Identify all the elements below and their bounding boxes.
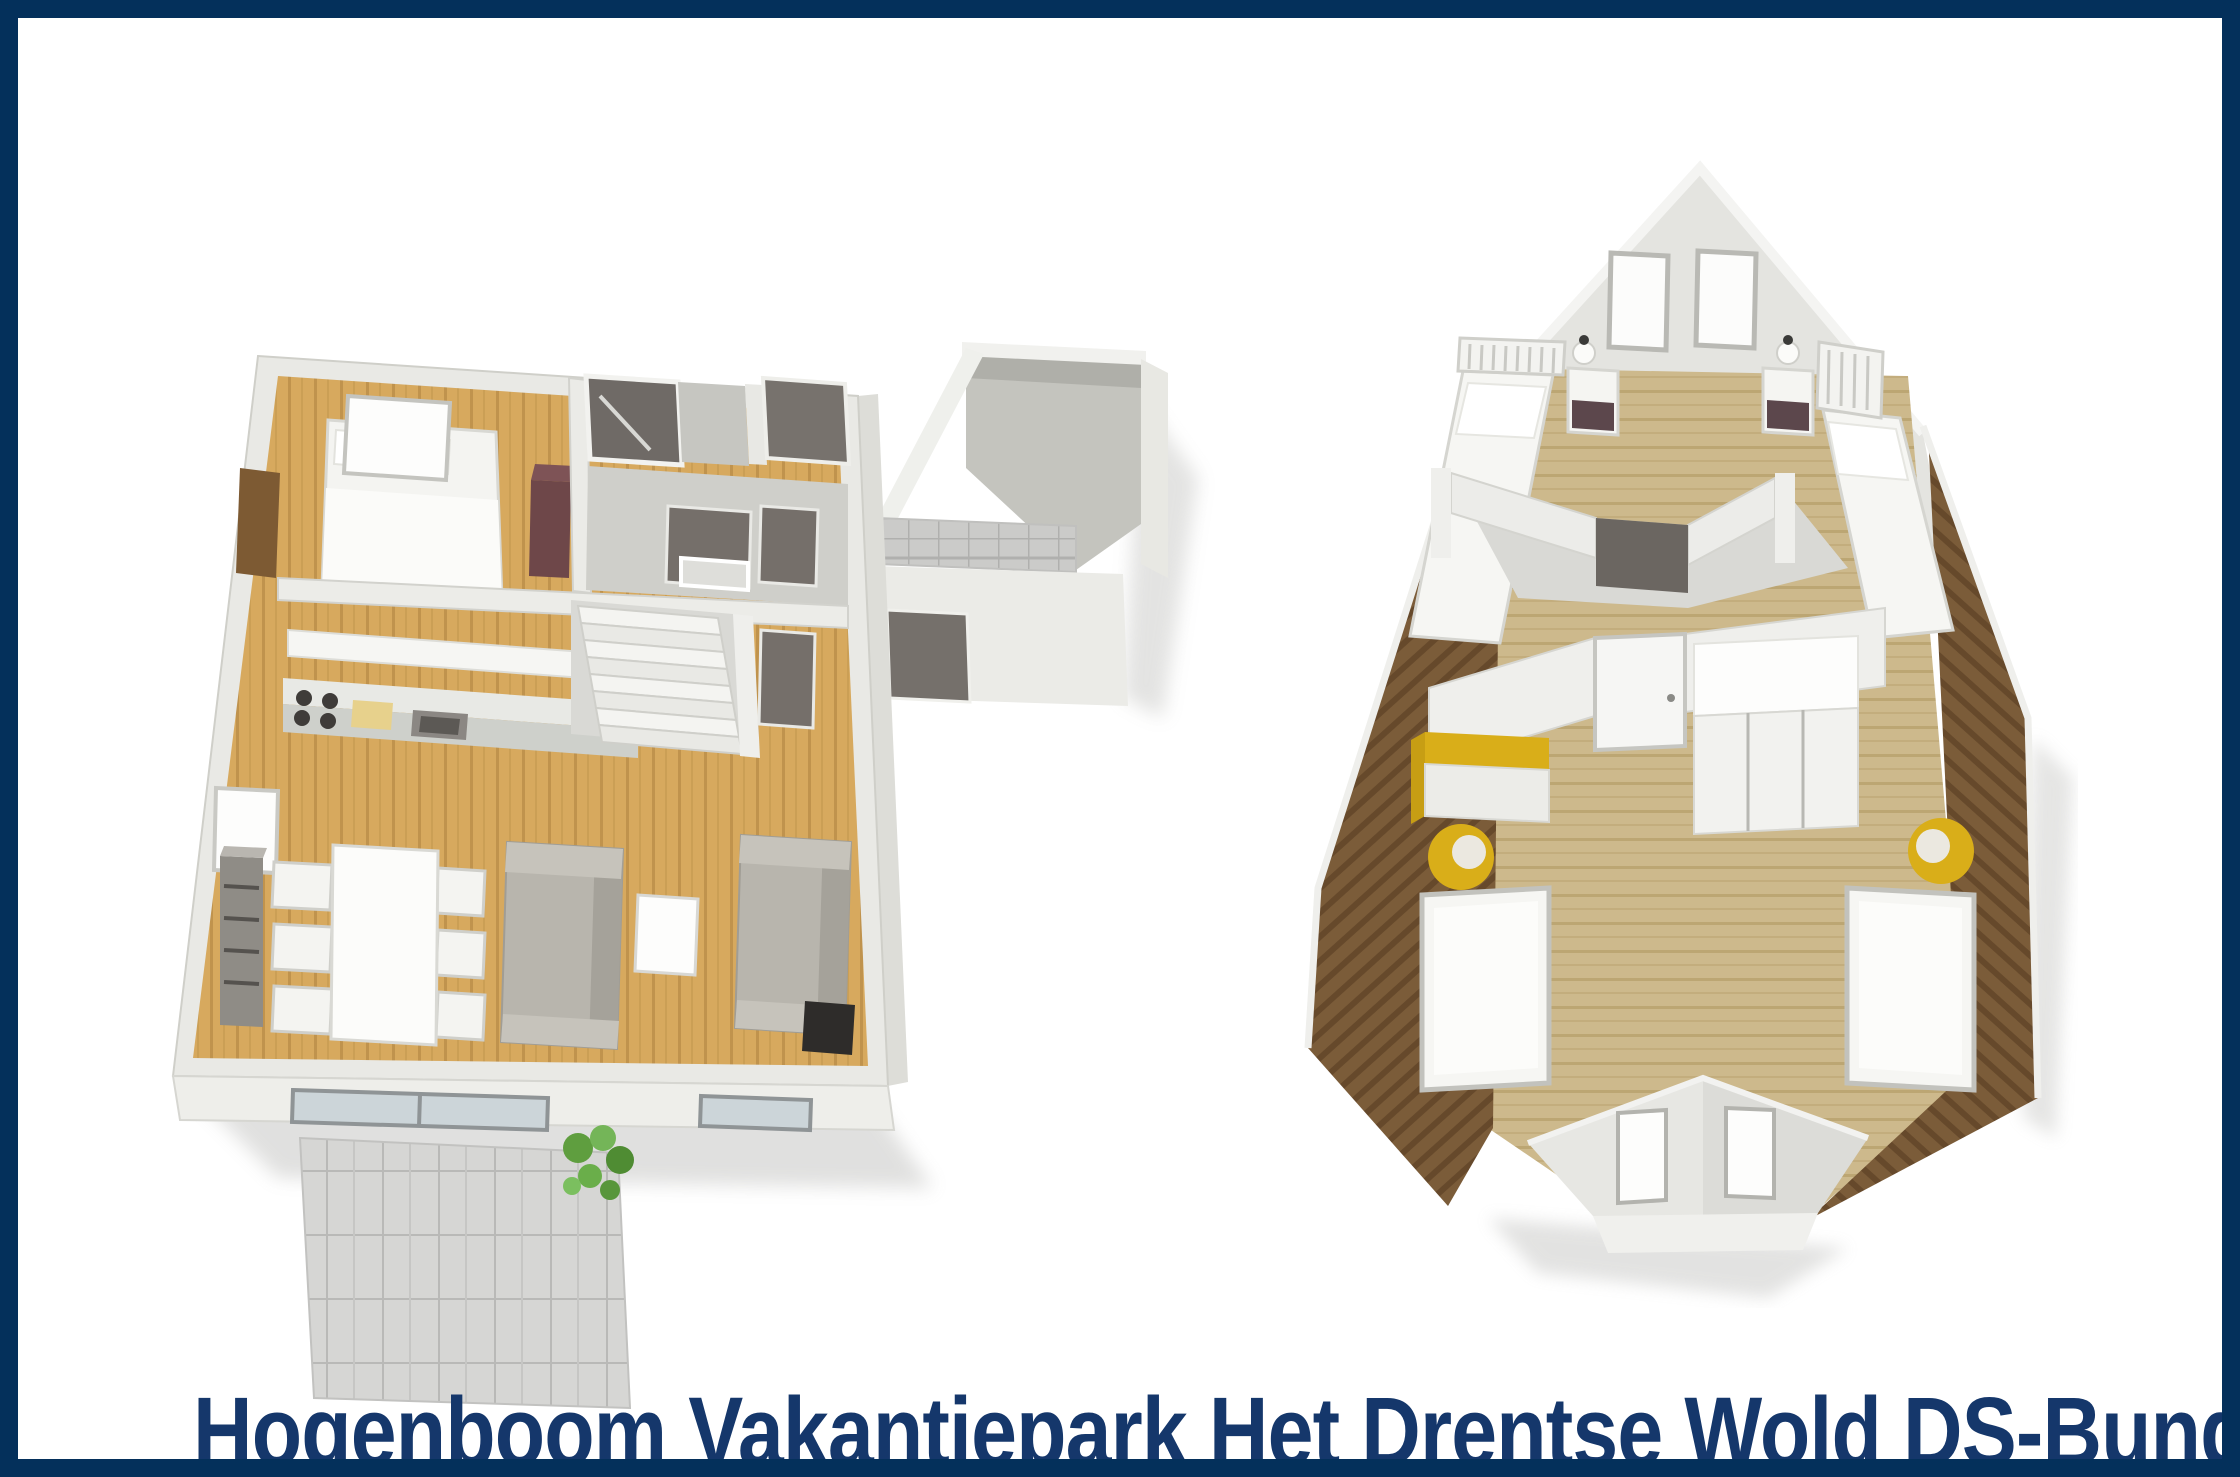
door [1595,634,1685,750]
stair-door [759,630,815,728]
annex-door [887,610,970,702]
lamp [1573,342,1595,364]
wardrobe [1694,636,1858,834]
sideboard [220,846,267,1027]
annex-tiled-floor [876,518,1076,572]
cutting-board [351,700,393,730]
dining-table [331,845,438,1045]
yellow-desk [1411,732,1549,824]
yellow-tub-chair [1908,818,1974,884]
storage-annex [874,342,1168,706]
bedroom-window [344,396,450,480]
hall-door [759,506,818,586]
yellow-tub-chair [1428,824,1494,890]
sink-basin [419,716,460,735]
ground-floor-plan [158,338,1258,1418]
first-floor-plan [1288,138,2078,1308]
toilet-room [745,378,849,465]
coffee-table [635,895,698,975]
single-bed [1422,888,1549,1090]
dining-set [272,845,485,1045]
bath-side-wall [678,382,749,466]
slatted-headboard [1458,338,1565,375]
living-window [700,1096,811,1130]
landing-side-wall [1775,473,1795,563]
bathroom-interior [586,376,682,465]
page-frame: Hogenboom Vakantiepark Het Drentse Wold … [0,0,2240,1477]
toilet-room-interior [763,378,849,464]
entry-door [236,468,280,578]
caption-text: Hogenboom Vakantiepark Het Drentse Wold … [193,1377,2240,1477]
single-bed [1847,888,1974,1090]
landing-side-wall [1431,468,1451,558]
lamp [1777,342,1799,364]
maroon-wardrobe [529,480,571,578]
doorway [1596,518,1688,593]
hallway [586,466,848,606]
annex-right-wall [1141,359,1168,578]
south-wall [173,1076,894,1130]
sofa [501,842,623,1049]
tv [802,1001,855,1055]
maroon-wardrobe-top [531,464,575,482]
hall-niche [681,558,748,590]
slatted-headboard [1817,342,1883,418]
caption-title: Hogenboom Vakantiepark Het Drentse Wold … [193,1376,2240,1477]
